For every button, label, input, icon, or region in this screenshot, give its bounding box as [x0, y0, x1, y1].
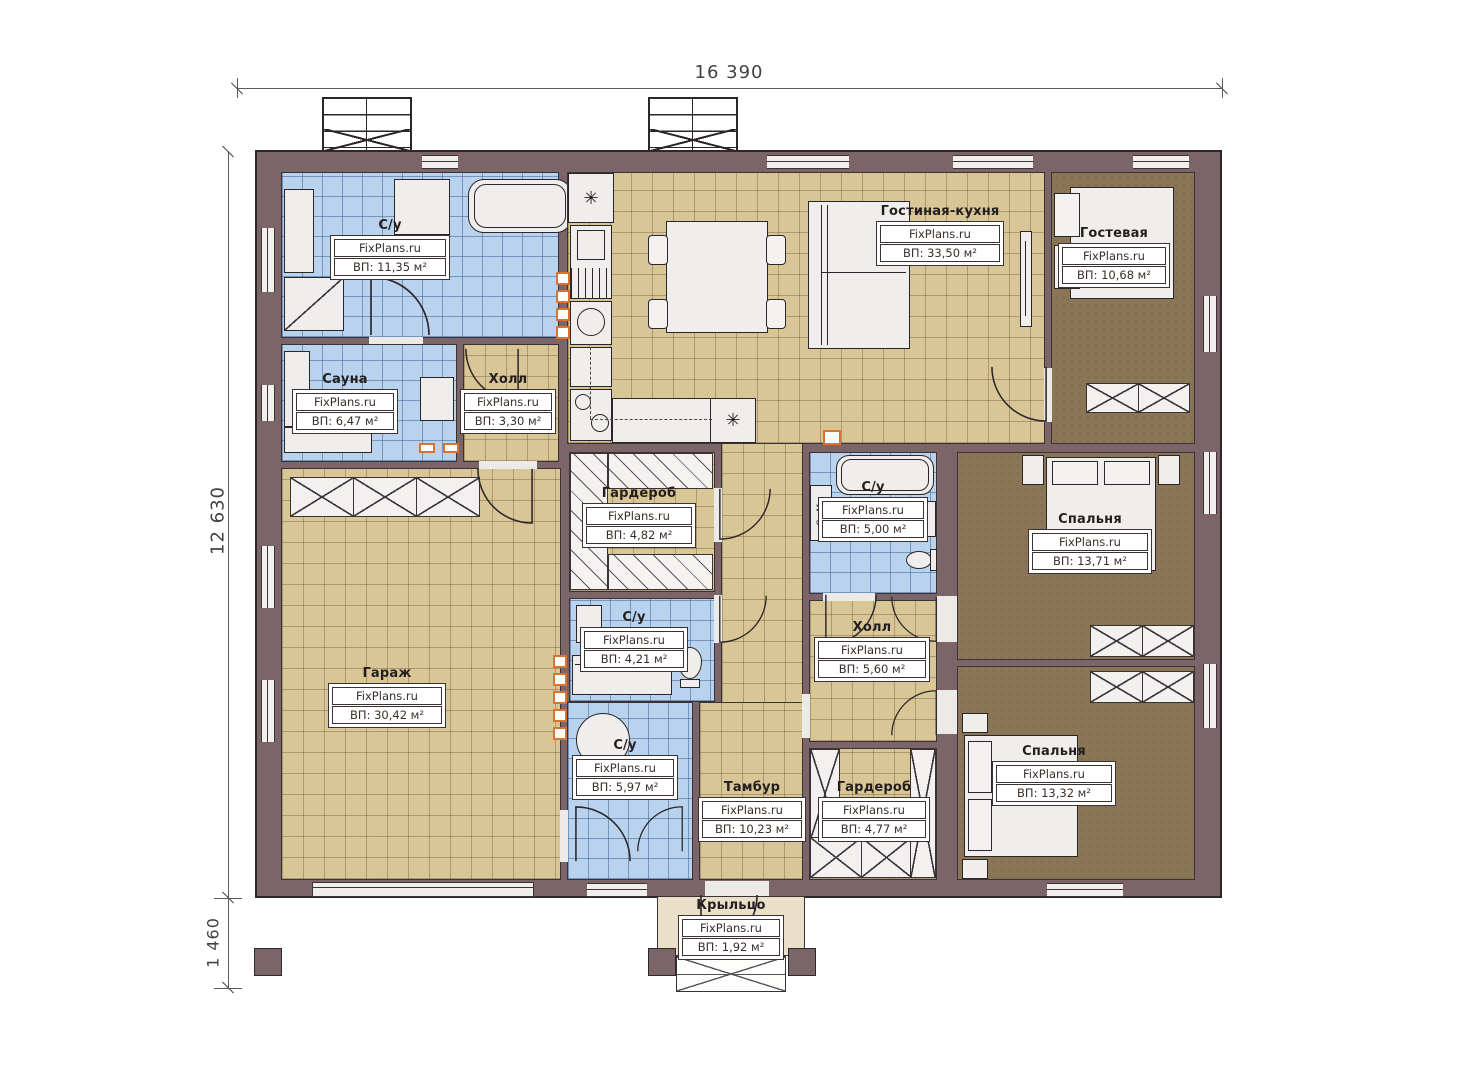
watermark: FixPlans.ru [822, 501, 924, 519]
room-area: ВП: 11,35 м² [334, 258, 446, 276]
kitchen-counter [570, 347, 612, 387]
dimension-label-left-lower: 1 460 [204, 898, 223, 988]
corridor [721, 444, 803, 706]
watermark: FixPlans.ru [332, 687, 442, 705]
chair [766, 235, 786, 265]
room-label-su1: С/у FixPlans.ru ВП: 11,35 м² [330, 218, 450, 280]
window [261, 680, 275, 742]
hob-burner [575, 394, 591, 410]
sink-bowl [577, 308, 605, 336]
room-label-su3: С/у FixPlans.ru ВП: 5,00 м² [818, 480, 928, 542]
hob-burner [591, 414, 609, 432]
kitchen-hob [570, 389, 612, 441]
room-label-bedroom1: Спальня FixPlans.ru ВП: 13,71 м² [1028, 512, 1152, 574]
nightstand [1158, 455, 1180, 485]
window [1203, 296, 1217, 352]
room-area: ВП: 33,50 м² [880, 244, 1000, 262]
kitchen-counter-bottom [612, 398, 712, 443]
door-arc [719, 595, 767, 643]
room-name: Гостиная-кухня [876, 204, 1004, 219]
window [587, 883, 647, 897]
room-label-hall2: Холл FixPlans.ru ВП: 5,60 м² [814, 620, 930, 682]
area-label-box: FixPlans.ru ВП: 30,42 м² [328, 683, 446, 728]
area-label-box: FixPlans.ru ВП: 5,00 м² [818, 497, 928, 542]
room-area: ВП: 6,47 м² [296, 412, 394, 430]
window [1203, 664, 1217, 728]
vent-marker [556, 326, 570, 339]
kitchen-appliance: ✳ [710, 398, 756, 443]
watermark: FixPlans.ru [464, 393, 552, 411]
garage-shelving [290, 477, 480, 517]
kitchen-dashed-line [590, 347, 591, 419]
vent-marker [553, 673, 567, 686]
room-label-living: Гостиная-кухня FixPlans.ru ВП: 33,50 м² [876, 204, 1004, 266]
garage-gate [312, 882, 534, 897]
shower-tray [284, 277, 344, 331]
sofa-line [827, 205, 828, 345]
vent-marker [553, 709, 567, 722]
watermark: FixPlans.ru [702, 801, 802, 819]
nightstand [1022, 455, 1044, 485]
watermark: FixPlans.ru [682, 919, 780, 937]
door-opening [937, 596, 957, 642]
area-label-box: FixPlans.ru ВП: 4,82 м² [582, 503, 696, 548]
door-arc [891, 690, 937, 736]
window [1133, 155, 1189, 169]
room-area: ВП: 4,82 м² [586, 526, 692, 544]
vent-marker [556, 272, 570, 285]
room-name: Гардероб [818, 780, 930, 795]
room-guest [1051, 172, 1195, 444]
kitchen-sink-cell [570, 301, 612, 345]
window [261, 228, 275, 292]
room-name: Холл [460, 372, 556, 387]
site-column [254, 948, 282, 976]
dimension-extension [214, 988, 242, 989]
window [767, 155, 849, 169]
watermark: FixPlans.ru [334, 239, 446, 257]
room-name: Спальня [1028, 512, 1152, 527]
room-label-porch: Крыльцо FixPlans.ru ВП: 1,92 м² [678, 898, 784, 960]
watermark: FixPlans.ru [576, 759, 674, 777]
door-opening [560, 810, 568, 862]
room-area: ВП: 4,21 м² [584, 650, 684, 668]
sofa-line [821, 205, 822, 345]
watermark: FixPlans.ru [586, 507, 692, 525]
window [261, 546, 275, 608]
dimension-extension [1222, 78, 1223, 98]
chimney-block [322, 97, 412, 153]
nightstand [962, 859, 988, 879]
vent-marker [419, 443, 435, 453]
room-area: ВП: 3,30 м² [464, 412, 552, 430]
wardrobe-cabinet [1090, 625, 1194, 657]
door-opening [369, 337, 423, 344]
watermark: FixPlans.ru [880, 225, 1000, 243]
room-name: Сауна [292, 372, 398, 387]
room-area: ВП: 30,42 м² [332, 706, 442, 724]
chair [648, 235, 668, 265]
room-name: Гараж [328, 666, 446, 681]
wardrobe-cabinet [1086, 383, 1190, 413]
window [261, 385, 275, 421]
area-label-box: FixPlans.ru ВП: 6,47 м² [292, 389, 398, 434]
area-label-box: FixPlans.ru ВП: 3,30 м² [460, 389, 556, 434]
vent-marker [556, 290, 570, 303]
toilet [906, 551, 932, 569]
watermark: FixPlans.ru [584, 631, 684, 649]
room-area: ВП: 5,00 м² [822, 520, 924, 538]
chair [648, 299, 668, 329]
vent-marker [553, 655, 567, 668]
area-label-box: FixPlans.ru ВП: 10,23 м² [698, 797, 806, 842]
room-name: С/у [572, 738, 678, 753]
dimension-line-top [237, 88, 1222, 89]
vent-marker [553, 727, 567, 740]
door-opening [937, 690, 957, 734]
porch-column [788, 948, 816, 976]
watermark: FixPlans.ru [1032, 533, 1148, 551]
watermark: FixPlans.ru [996, 765, 1112, 783]
bathtub-inner [474, 184, 566, 228]
door-arc [637, 806, 683, 852]
room-name: С/у [580, 610, 688, 625]
room-name: С/у [818, 480, 928, 495]
room-label-hall1: Холл FixPlans.ru ВП: 3,30 м² [460, 372, 556, 434]
vent-marker [556, 308, 570, 321]
area-label-box: FixPlans.ru ВП: 10,68 м² [1058, 243, 1170, 288]
watermark: FixPlans.ru [822, 801, 926, 819]
room-name: С/у [330, 218, 450, 233]
area-label-box: FixPlans.ru ВП: 13,32 м² [992, 761, 1116, 806]
sofa-line [821, 272, 906, 273]
porch-column [648, 948, 676, 976]
room-area: ВП: 10,68 м² [1062, 266, 1166, 284]
vent-marker [443, 443, 459, 453]
door-opening [802, 694, 810, 738]
area-label-box: FixPlans.ru ВП: 4,21 м² [580, 627, 688, 672]
area-label-box: FixPlans.ru ВП: 11,35 м² [330, 235, 450, 280]
porch-steps [676, 956, 786, 992]
floor-plan: 16 390 12 630 1 460 ✳ [0, 0, 1473, 1080]
room-area: ВП: 5,97 м² [576, 778, 674, 796]
room-label-tambur: Тамбур FixPlans.ru ВП: 10,23 м² [698, 780, 806, 842]
room-label-su4: С/у FixPlans.ru ВП: 5,97 м² [572, 738, 678, 800]
window [1203, 452, 1217, 514]
door-arc [477, 468, 533, 524]
area-label-box: FixPlans.ru ВП: 5,97 м² [572, 755, 678, 800]
door-arc [575, 806, 631, 862]
room-area: ВП: 13,32 м² [996, 784, 1112, 802]
kitchen-oven [570, 225, 612, 299]
pillow [1052, 461, 1098, 485]
room-label-guest: Гостевая FixPlans.ru ВП: 10,68 м² [1058, 226, 1170, 288]
room-name: Холл [814, 620, 930, 635]
kitchen-dashed-line [590, 419, 712, 420]
dimension-line-left-lower [228, 898, 229, 988]
room-name: Спальня [992, 744, 1116, 759]
room-area: ВП: 13,71 м² [1032, 552, 1148, 570]
room-label-sauna: Сауна FixPlans.ru ВП: 6,47 м² [292, 372, 398, 434]
door-arc [370, 276, 430, 336]
room-label-su2: С/у FixPlans.ru ВП: 4,21 м² [580, 610, 688, 672]
vent-marker [823, 430, 841, 445]
room-label-bedroom2: Спальня FixPlans.ru ВП: 13,32 м² [992, 744, 1116, 806]
wardrobe-cabinet [810, 837, 912, 878]
room-label-garage: Гараж FixPlans.ru ВП: 30,42 м² [328, 666, 446, 728]
room-label-wardrobe2: Гардероб FixPlans.ru ВП: 4,77 м² [818, 780, 930, 842]
pillow [1104, 461, 1150, 485]
kitchen-appliance-fridge: ✳ [568, 173, 614, 223]
wardrobe-cabinet [1090, 671, 1194, 703]
washbasin-counter [284, 189, 314, 273]
chimney-block [648, 97, 738, 153]
toilet-tank [930, 549, 937, 571]
area-label-box: FixPlans.ru ВП: 13,71 м² [1028, 529, 1152, 574]
room-name: Крыльцо [678, 898, 784, 913]
door-arc [719, 488, 771, 540]
watermark: FixPlans.ru [818, 641, 926, 659]
watermark: FixPlans.ru [296, 393, 394, 411]
dimension-extension [237, 78, 238, 98]
dining-table [666, 221, 768, 333]
window [953, 155, 1033, 169]
area-label-box: FixPlans.ru ВП: 5,60 м² [814, 637, 930, 682]
tv-unit [1020, 231, 1032, 327]
vent-marker [553, 691, 567, 704]
oven-door [577, 230, 605, 260]
door-arc [991, 366, 1047, 422]
chair [766, 299, 786, 329]
sauna-stove [420, 377, 454, 421]
area-label-box: FixPlans.ru ВП: 4,77 м² [818, 797, 930, 842]
room-name: Гостевая [1058, 226, 1170, 241]
room-area: ВП: 4,77 м² [822, 820, 926, 838]
room-name: Гардероб [582, 486, 696, 501]
room-area: ВП: 1,92 м² [682, 938, 780, 956]
window [422, 155, 458, 169]
area-label-box: FixPlans.ru ВП: 33,50 м² [876, 221, 1004, 266]
wardrobe-shelves [608, 554, 713, 590]
toilet-tank [680, 679, 700, 688]
room-name: Тамбур [698, 780, 806, 795]
pillow [968, 799, 992, 851]
watermark: FixPlans.ru [1062, 247, 1166, 265]
dimension-label-left: 12 630 [208, 461, 229, 581]
dimension-label-top: 16 390 [649, 62, 809, 83]
nightstand [962, 713, 988, 733]
window [1047, 883, 1123, 897]
room-area: ВП: 10,23 м² [702, 820, 802, 838]
room-area: ВП: 5,60 м² [818, 660, 926, 678]
area-label-box: FixPlans.ru ВП: 1,92 м² [678, 915, 784, 960]
pillow [968, 741, 992, 793]
wardrobe-shelves [608, 453, 713, 489]
room-label-wardrobe1: Гардероб FixPlans.ru ВП: 4,82 м² [582, 486, 696, 548]
